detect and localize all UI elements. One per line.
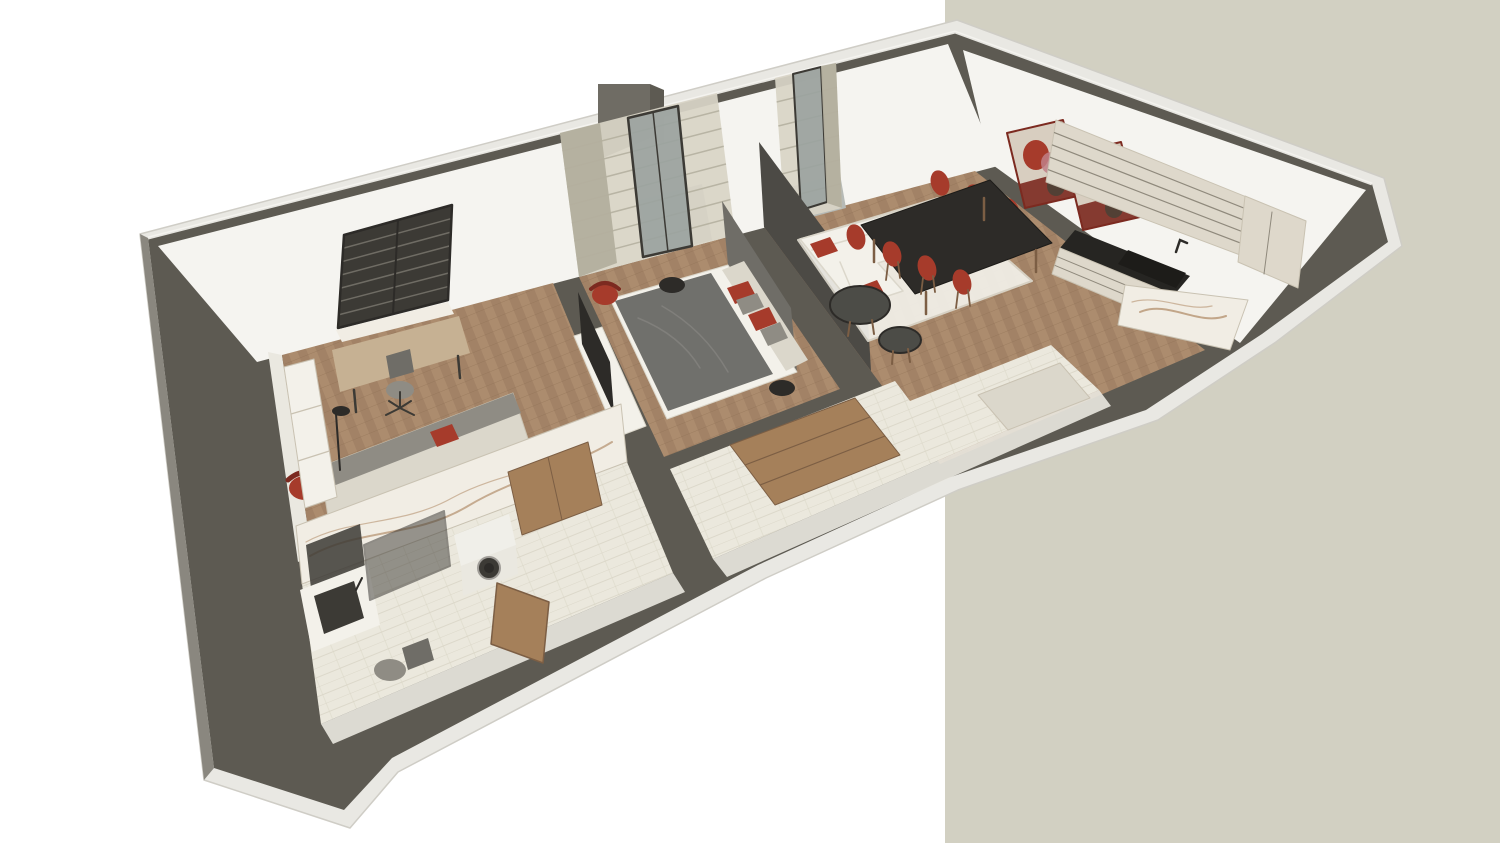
coffee-table-1 bbox=[830, 286, 890, 324]
scene-root bbox=[140, 0, 1500, 843]
toilet-bowl bbox=[374, 659, 406, 681]
bedroom-accent-chair bbox=[592, 285, 618, 305]
nightstand-1 bbox=[659, 277, 685, 293]
coffee-table-2 bbox=[879, 327, 921, 353]
washer-door-inner bbox=[484, 563, 494, 573]
floor-lamp-shade bbox=[332, 406, 350, 416]
floorplan-render-page bbox=[0, 0, 1500, 843]
nightstand-2 bbox=[769, 380, 795, 396]
scene-svg bbox=[0, 0, 1500, 843]
